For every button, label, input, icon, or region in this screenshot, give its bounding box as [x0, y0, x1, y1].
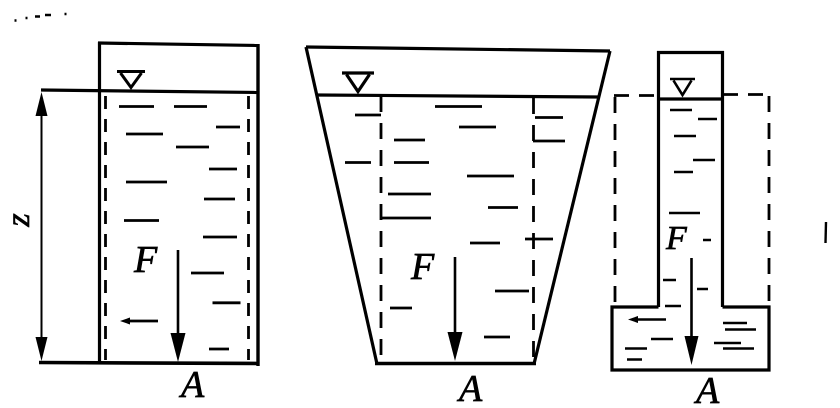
- svg-text:z: z: [0, 213, 37, 227]
- svg-text:F: F: [665, 220, 688, 257]
- svg-text:A: A: [693, 370, 720, 408]
- svg-text:F: F: [410, 246, 435, 288]
- svg-text:A: A: [456, 368, 483, 408]
- svg-text:F: F: [133, 239, 158, 281]
- svg-text:A: A: [178, 364, 205, 406]
